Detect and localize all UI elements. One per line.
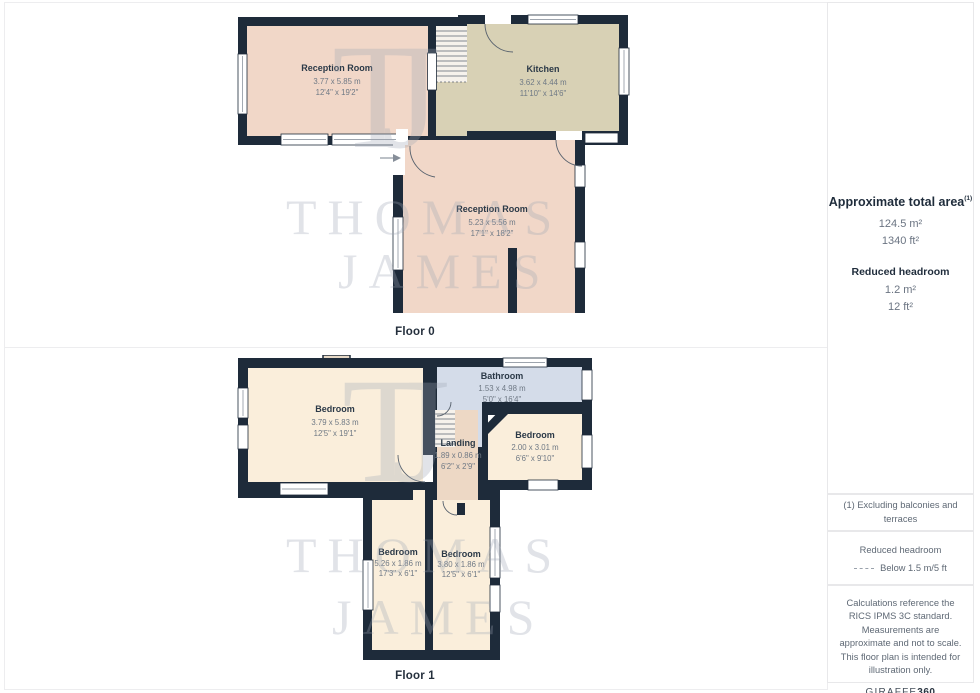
total-area-ft2: 1340 ft²	[828, 233, 973, 250]
room-label: Bedroom	[441, 549, 481, 559]
footnote-marker: (1)	[964, 195, 972, 202]
floorplan-page: Reception Room 3.77 x 5.85 m 12'4" x 19'…	[0, 0, 980, 693]
area-summary-box: Approximate total area(1) 124.5 m² 1340 …	[827, 2, 974, 494]
room-dim-ft: 6'6" x 9'10"	[516, 454, 555, 463]
room-label: Landing	[441, 438, 476, 448]
room-dim-m: 3.77 x 5.85 m	[313, 77, 360, 86]
legend-title: Reduced headroom	[828, 544, 973, 557]
room-dim-m: 3.80 x 1.86 m	[437, 560, 484, 569]
room-dim-m: 1.89 x 0.86 m	[434, 451, 481, 460]
room-dim-m: 1.53 x 4.98 m	[478, 384, 525, 393]
room-label: Reception Room	[456, 204, 528, 214]
floor1-label: Floor 1	[355, 670, 475, 682]
room-dim-ft: 17'3" x 6'1"	[379, 569, 418, 578]
room-dim-ft: 17'1" x 18'2"	[471, 229, 514, 238]
room-dim-m: 5.23 x 5.56 m	[468, 218, 515, 227]
floor0-plan: Reception Room 3.77 x 5.85 m 12'4" x 19'…	[230, 10, 635, 315]
legend-value: Below 1.5 m/5 ft	[880, 563, 947, 573]
room-dim-ft: 12'4" x 19'2"	[316, 88, 359, 97]
giraffe360-logo: GIRAFFE360	[837, 687, 964, 693]
stairwell	[436, 26, 467, 82]
room-dim-ft: 11'10" x 14'6"	[520, 89, 567, 98]
total-area-m2: 124.5 m²	[828, 216, 973, 233]
disclaimer-text: Calculations reference the RICS IPMS 3C …	[837, 597, 964, 678]
total-area-title: Approximate total area(1)	[828, 195, 973, 209]
brand-name: GIRAFFE	[866, 687, 918, 693]
room-dim-m: 3.62 x 4.44 m	[519, 78, 566, 87]
hall-corridor	[436, 82, 467, 136]
doorway-gap	[413, 490, 425, 500]
partition-wall	[508, 248, 517, 313]
reduced-headroom-title: Reduced headroom	[828, 266, 973, 278]
room-label: Bedroom	[378, 547, 418, 557]
room-dim-ft: 12'5" x 6'1"	[442, 570, 481, 579]
room-dim-m: 3.79 x 5.83 m	[311, 418, 358, 427]
dashed-line-icon	[854, 568, 874, 569]
footnote-text: (1) Excluding balconies and terraces	[828, 499, 973, 525]
room-label: Bedroom	[515, 430, 555, 440]
room-label: Kitchen	[526, 64, 559, 74]
total-area-title-text: Approximate total area	[829, 195, 964, 209]
legend-box: Reduced headroom Below 1.5 m/5 ft	[827, 531, 974, 585]
legend-entry: Below 1.5 m/5 ft	[828, 563, 973, 573]
disclaimer-box: Calculations reference the RICS IPMS 3C …	[827, 585, 974, 683]
floor1-plan: Bedroom 3.79 x 5.83 m 12'5" x 19'1" Bath…	[235, 355, 595, 660]
room-label: Bedroom	[315, 404, 355, 414]
room-dim-m: 2.00 x 3.01 m	[511, 443, 558, 452]
floor-section-divider	[5, 347, 827, 348]
info-sidebar: Approximate total area(1) 124.5 m² 1340 …	[827, 2, 976, 688]
room-label: Reception Room	[301, 63, 373, 73]
room-dim-ft: 5'0" x 16'4"	[483, 395, 522, 404]
room-dim-ft: 12'5" x 19'1"	[314, 429, 357, 438]
footnote-box: (1) Excluding balconies and terraces	[827, 494, 974, 531]
floor0-label: Floor 0	[355, 326, 475, 338]
brand-suffix: 360	[917, 687, 935, 693]
reduced-headroom-ft2: 12 ft²	[828, 299, 973, 316]
room-label: Bathroom	[481, 371, 524, 381]
room-dim-m: 5.26 x 1.86 m	[374, 559, 421, 568]
room-dim-ft: 6'2" x 2'9"	[441, 462, 475, 471]
reduced-headroom-m2: 1.2 m²	[828, 282, 973, 299]
